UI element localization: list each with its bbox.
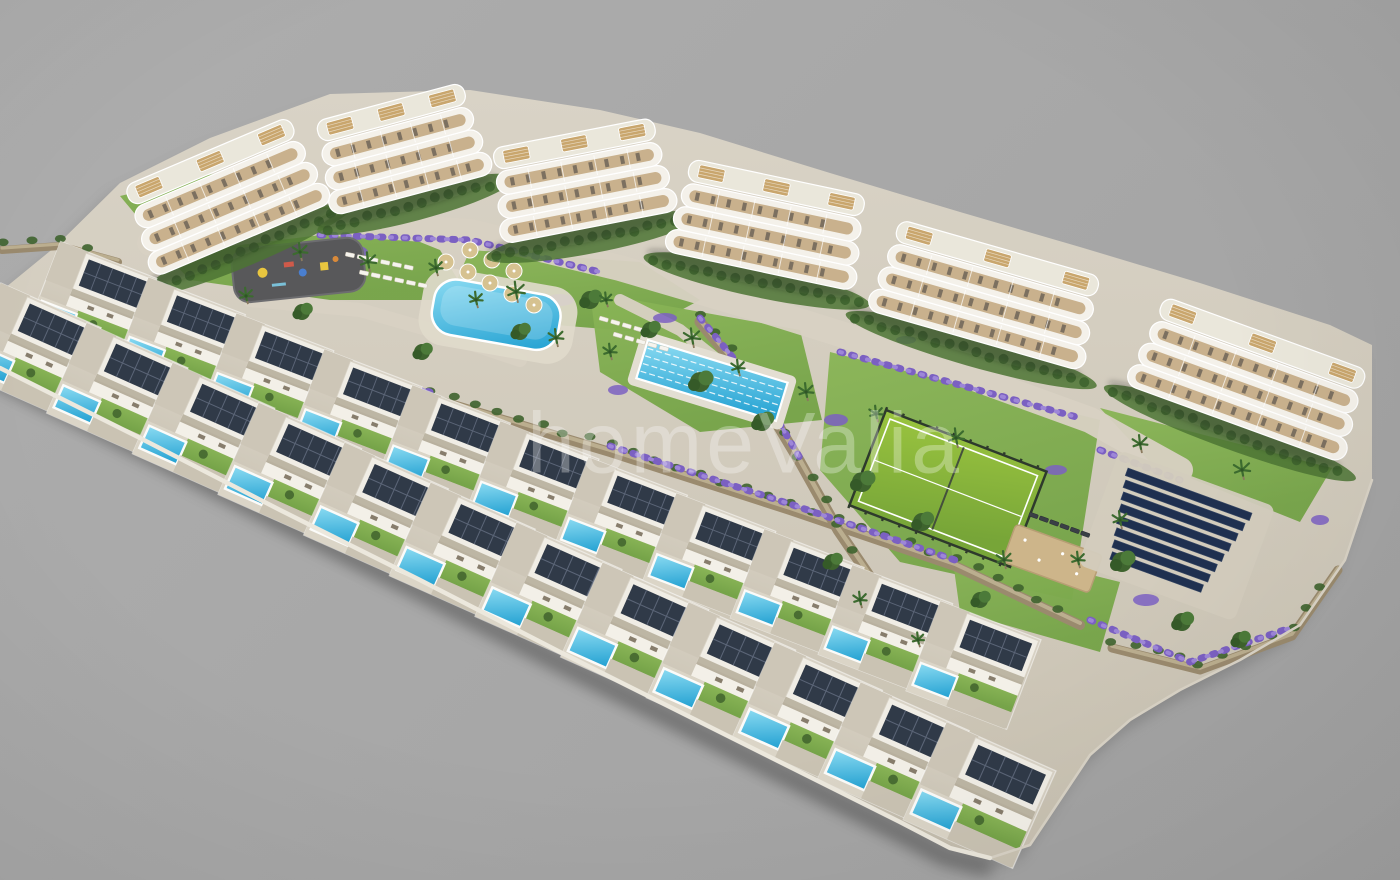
development-site [0,76,1392,872]
render-canvas: homeValia [0,0,1400,880]
site-plan-render [0,0,1400,880]
